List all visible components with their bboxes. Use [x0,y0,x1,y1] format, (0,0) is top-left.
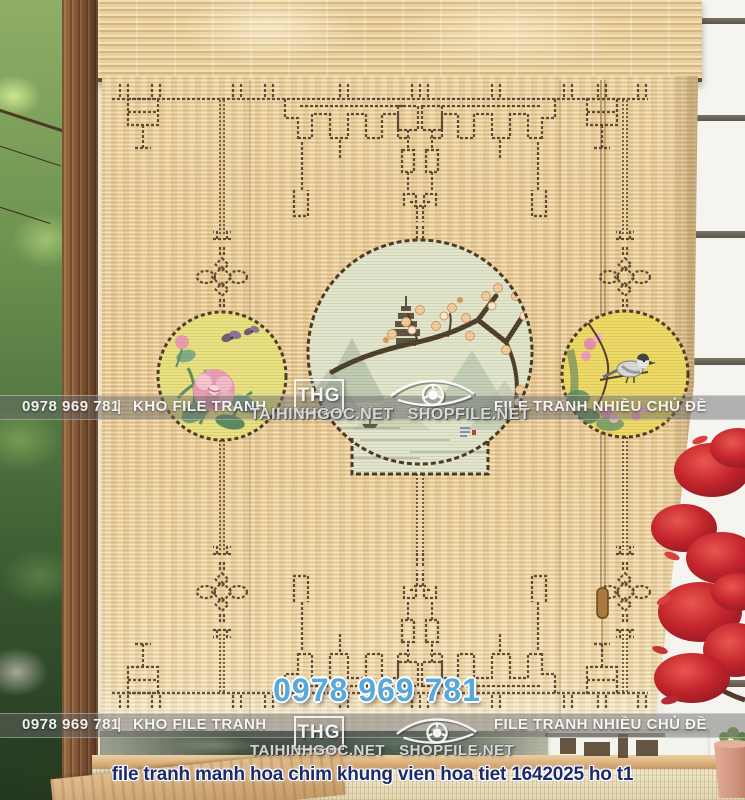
watermark-sites: TAIHINHGOC.NETSHOPFILE.NET [250,742,510,759]
watermark-phone: 0978 969 781 [22,396,120,418]
watermark-bar-bottom: 0978 969 781 | KHO FILE TRANH FILE TRANH… [0,713,745,738]
site-secondary: SHOPFILE.NET [408,406,530,423]
watermark-store: KHO FILE TRANH [133,714,267,736]
watermark-store: KHO FILE TRANH [133,396,267,418]
pull-cord-bead [597,588,608,618]
watermark-sites: TAIHINHGOC.NETSHOPFILE.NET [250,406,510,424]
site-primary: TAIHINHGOC.NET [250,406,394,423]
right-round-painting [560,310,690,440]
watermark-tagline: FILE TRANH NHIỀU CHỦ ĐỀ [494,714,707,736]
center-fan-painting [300,238,543,478]
watermark-divider: | [117,396,122,418]
product-photo-bamboo-blind: 0978 969 781 | KHO FILE TRANH FILE TRANH… [0,0,745,800]
thg-logo-text: THG [297,385,340,407]
large-phone-number: 0978 969 781 [258,672,496,709]
thg-logo-text: THG [297,722,340,744]
site-secondary: SHOPFILE.NET [399,742,514,759]
site-primary: TAIHINHGOC.NET [250,742,385,759]
watermark-divider: | [117,714,122,736]
image-caption: file tranh manh hoa chim khung vien hoa … [0,764,745,786]
maple-plant [651,428,745,706]
watermark-phone: 0978 969 781 [22,714,120,736]
